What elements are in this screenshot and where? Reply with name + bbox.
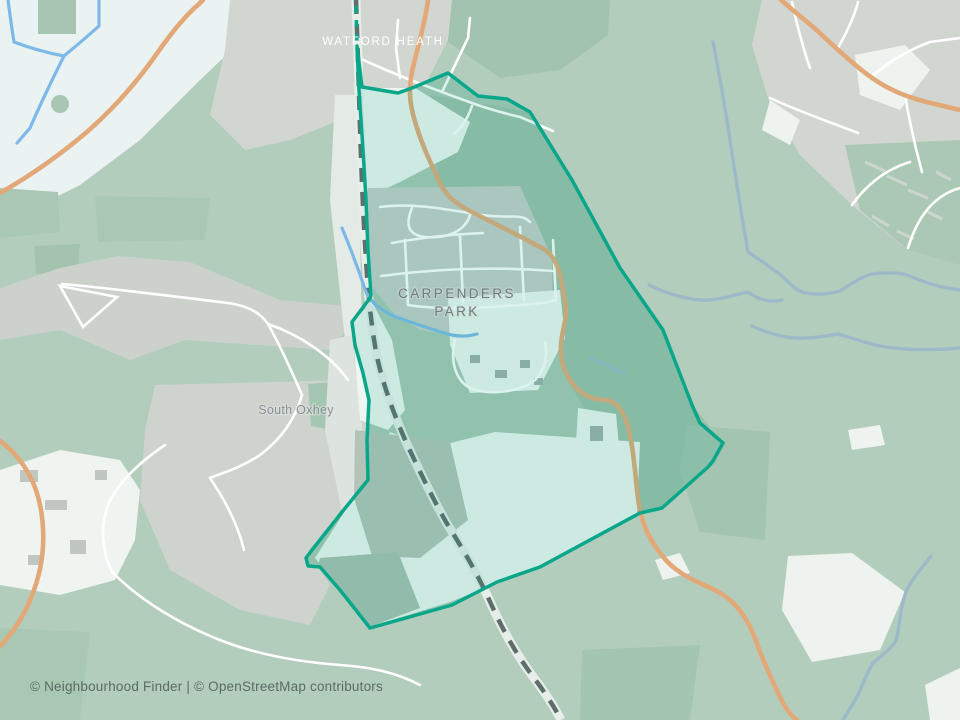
wood-patch [0,628,90,720]
attribution: © Neighbourhood Finder | © OpenStreetMap… [30,679,383,694]
label-carpenders-park-line2: PARK [434,304,479,319]
map-canvas[interactable]: WATFORD HEATH CARPENDERS PARK South Oxhe… [0,0,960,720]
tree-patch [51,95,69,113]
wood-patch [580,645,700,720]
label-south-oxhey: South Oxhey [258,403,334,417]
wood-patch [0,188,60,238]
wood-patch [38,0,76,34]
label-carpenders-park-line1: CARPENDERS [398,286,516,301]
map-root: WATFORD HEATH CARPENDERS PARK South Oxhe… [0,0,960,720]
wood-patch [95,196,210,242]
label-watford-heath: WATFORD HEATH [322,36,444,48]
